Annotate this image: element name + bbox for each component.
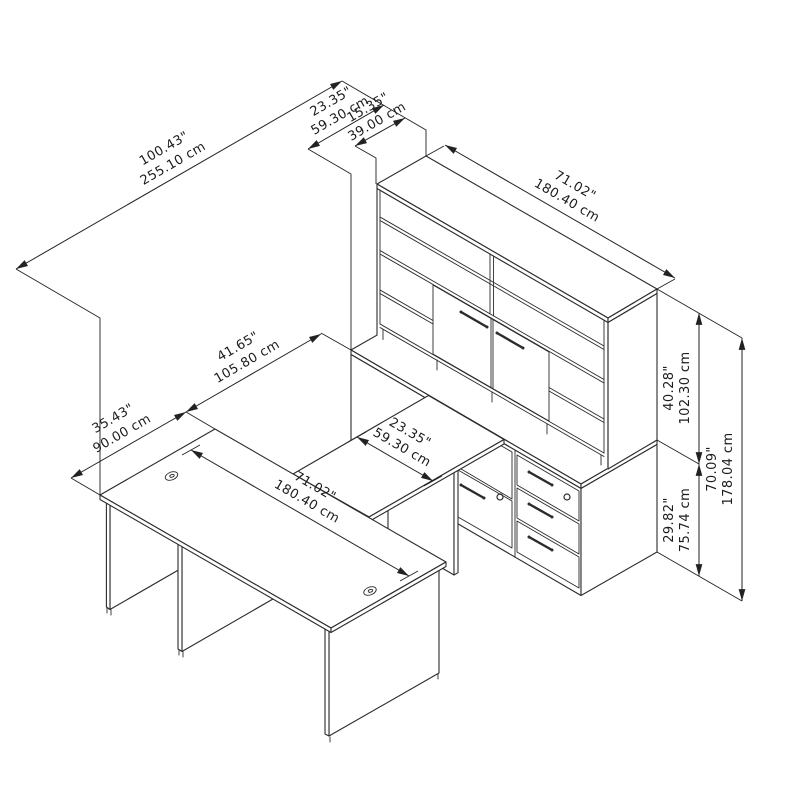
handle-pad [486,326,489,329]
dim-desk-height-inch: 29.82" [662,497,677,543]
dim-total-height-inch: 70.09" [705,446,720,492]
handle-pad [551,549,554,552]
handle-pad [483,497,486,500]
desk-middle-panel-edge [178,542,182,652]
handle-pad [528,536,531,539]
handle-pad [528,471,531,474]
handle-pad [496,332,499,335]
handle-pad [460,311,463,314]
desk-right-panel-edge [325,627,329,736]
line-drawing-canvas: 100.43" 255.10 cm 23.35" 59.30 cm 15.35"… [0,0,800,800]
handle-pad [551,516,554,519]
handle-pad [551,484,554,487]
dim-hutch-height-cm: 102.30 cm [678,351,693,424]
dimension-diagram: 100.43" 255.10 cm 23.35" 59.30 cm 15.35"… [0,0,800,800]
handle-pad [522,347,525,350]
handle-pad [528,503,531,506]
hutch-side-face [608,294,657,470]
desk-left-panel-edge [106,500,110,610]
dim-desk-height-cm: 75.74 cm [678,488,693,552]
dim-hutch-height-inch: 40.28" [662,365,677,411]
dim-total-height-cm: 178.04 cm [721,432,736,505]
bridge-support-edge [454,466,458,575]
handle-pad [460,484,463,487]
